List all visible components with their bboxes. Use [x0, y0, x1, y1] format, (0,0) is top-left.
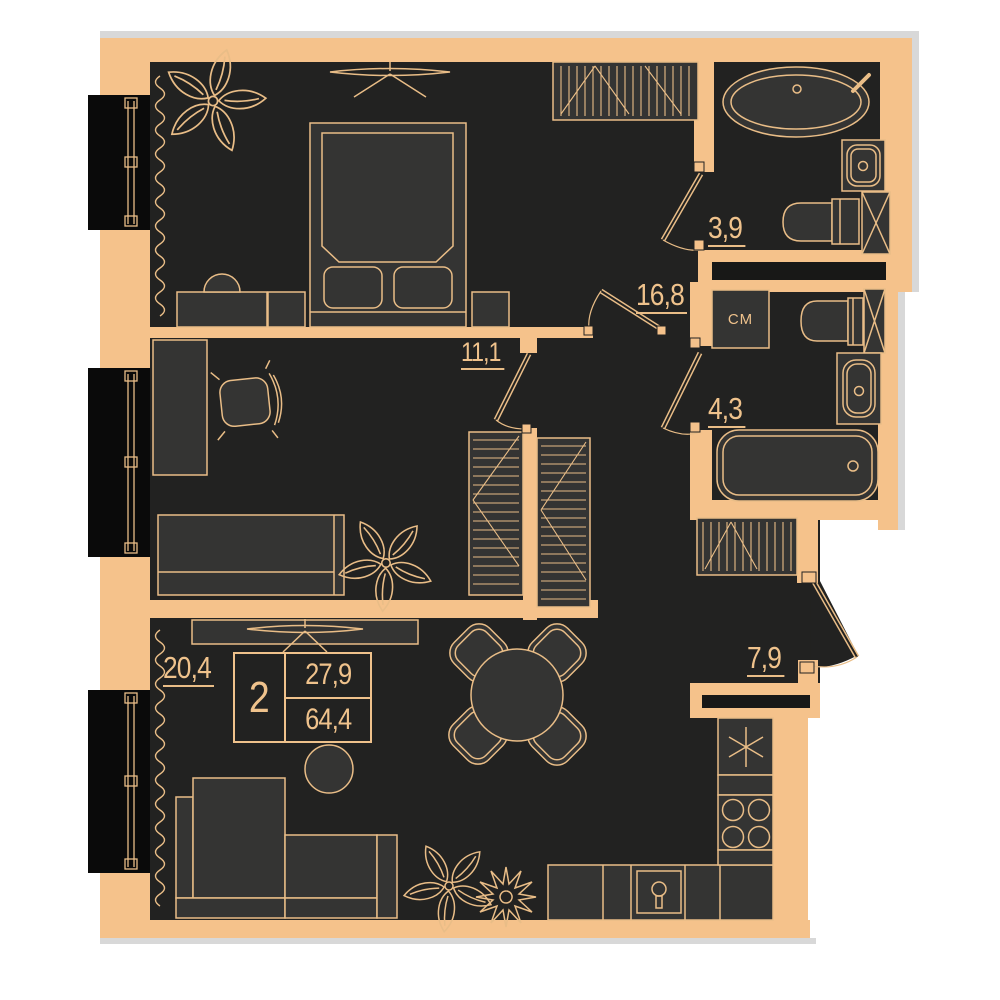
floor-plan-drawing — [0, 0, 1000, 1000]
windows — [88, 95, 150, 873]
wall-bath2-bottom — [690, 500, 898, 520]
wall-corridor-bath2-a — [690, 282, 712, 346]
window-1 — [88, 95, 150, 230]
entry-hall — [697, 518, 797, 575]
area-label-bathroom: 3,9 — [708, 212, 745, 247]
wardrobe-icon — [697, 518, 797, 575]
apartment-info-box: 2 27,9 64,4 — [233, 652, 372, 743]
kitchen-column-icon — [718, 718, 773, 865]
living-area-value: 27,9 — [286, 654, 370, 699]
wall-left-2 — [100, 230, 150, 368]
pillow-icon — [394, 267, 452, 308]
wardrobe-icon — [537, 438, 590, 607]
area-label-bedroom: 16,8 — [636, 279, 687, 314]
wall-kitchen-right — [773, 718, 808, 920]
rooms-count: 2 — [235, 654, 286, 741]
area-label-room: 11,1 — [461, 339, 504, 370]
wardrobe-icon — [469, 432, 523, 595]
sofa-small-icon — [158, 515, 344, 595]
total-area-value: 64,4 — [286, 699, 370, 742]
washing-machine-label: СМ — [712, 290, 769, 348]
wall-left-1 — [100, 38, 150, 97]
stove-icon — [718, 795, 773, 850]
bathtub-icon — [717, 430, 878, 501]
shaft-icon — [864, 289, 885, 353]
area-label-bathroom2: 4,3 — [708, 393, 745, 428]
dresser-icon — [177, 292, 267, 327]
toilet-icon — [783, 199, 859, 244]
wall-stub-room — [520, 327, 537, 353]
side-table-icon — [305, 745, 353, 793]
wall-corridor-bath2-b — [690, 430, 712, 500]
kitchen-counter-icon — [548, 865, 773, 920]
bed-icon — [310, 123, 466, 327]
wall-bottom — [100, 920, 810, 938]
area-label-hall: 7,9 — [747, 642, 784, 677]
sink-icon — [837, 353, 881, 424]
nightstand-icon — [268, 292, 305, 327]
floor-plan: 16,8 11,1 3,9 4,3 7,9 20,4 2 27,9 64,4 С… — [0, 0, 1000, 1000]
pillow-icon — [324, 267, 382, 308]
nightstand-icon — [472, 292, 509, 327]
area-label-living: 20,4 — [163, 652, 214, 687]
bathtub-icon — [723, 67, 869, 137]
toilet-icon — [801, 298, 863, 345]
wall-living-top — [150, 600, 598, 618]
wall-left-3 — [100, 557, 150, 690]
desk-icon — [153, 340, 207, 475]
wardrobe-icon — [553, 62, 698, 120]
sink-icon — [842, 140, 885, 191]
wall-top — [100, 38, 912, 62]
wall-room-right — [523, 428, 537, 620]
shaft-icon — [862, 192, 890, 254]
window-2 — [88, 368, 150, 557]
window-3 — [88, 690, 150, 873]
